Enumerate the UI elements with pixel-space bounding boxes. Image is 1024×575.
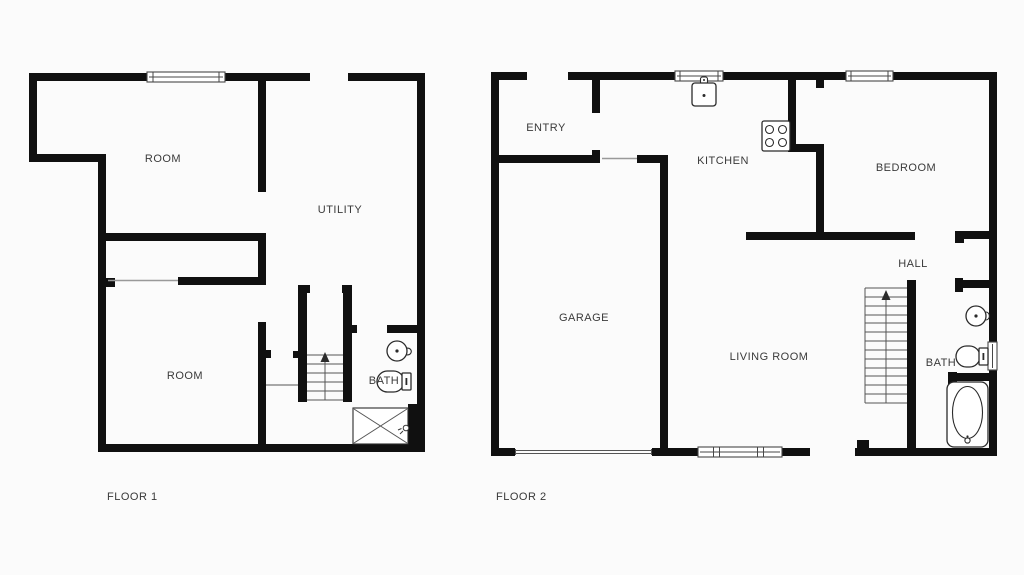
room-label: BATH bbox=[369, 375, 400, 387]
window-symbol bbox=[846, 71, 893, 81]
round-sink-icon bbox=[387, 341, 411, 361]
room-label: ROOM bbox=[167, 370, 203, 382]
door-jamb bbox=[816, 80, 824, 88]
wall-segment bbox=[29, 73, 37, 162]
room-label: GARAGE bbox=[559, 312, 609, 324]
room-label: KITCHEN bbox=[697, 155, 749, 167]
wall-segment bbox=[348, 73, 425, 81]
wall-segment bbox=[29, 73, 147, 81]
wall-segment bbox=[178, 277, 263, 285]
wall-segment bbox=[258, 81, 266, 192]
stove-icon bbox=[762, 121, 790, 151]
window-symbol bbox=[698, 447, 782, 457]
wall-segment bbox=[225, 73, 310, 81]
floor-plan-canvas: ROOM UTILITY ROOM BATH FLOOR 1 bbox=[0, 0, 1024, 575]
wall-segment bbox=[723, 72, 846, 80]
window-symbol bbox=[988, 342, 997, 370]
wall-segment bbox=[816, 144, 824, 240]
garage-door-symbol bbox=[515, 449, 652, 455]
shower-icon bbox=[353, 408, 409, 444]
wall-segment bbox=[258, 322, 266, 448]
door-jamb bbox=[343, 325, 357, 333]
door-jamb bbox=[106, 278, 115, 287]
wall-segment bbox=[491, 448, 515, 456]
wall-segment bbox=[592, 80, 600, 113]
wall-segment bbox=[417, 73, 425, 452]
wall-segment bbox=[568, 72, 675, 80]
wall-segment bbox=[857, 440, 869, 448]
room-label: ROOM bbox=[145, 153, 181, 165]
room-label: BATH bbox=[926, 357, 957, 369]
wall-segment bbox=[989, 72, 997, 456]
stairs-up-icon bbox=[865, 288, 907, 403]
floor2: ENTRY KITCHEN BEDROOM HALL GARAGE LIVING… bbox=[491, 71, 997, 503]
wall-segment bbox=[491, 72, 499, 456]
wall-segment bbox=[907, 280, 916, 448]
window-symbol bbox=[675, 71, 723, 81]
door-jamb bbox=[955, 231, 964, 243]
floor1: ROOM UTILITY ROOM BATH FLOOR 1 bbox=[29, 72, 425, 503]
wall-segment bbox=[408, 404, 417, 444]
wall-segment bbox=[106, 233, 263, 241]
door-jamb bbox=[955, 278, 963, 292]
wall-segment bbox=[387, 325, 417, 333]
room-label: ENTRY bbox=[526, 122, 566, 134]
wall-segment bbox=[782, 448, 810, 456]
room-label: LIVING ROOM bbox=[730, 351, 809, 363]
wall-segment bbox=[499, 155, 600, 163]
room-label: BEDROOM bbox=[876, 162, 936, 174]
floor-title: FLOOR 2 bbox=[496, 491, 547, 503]
door-jamb bbox=[266, 350, 271, 358]
wall-segment bbox=[98, 154, 106, 452]
wall-segment bbox=[29, 154, 106, 162]
bathtub-icon bbox=[947, 382, 988, 447]
round-sink-icon bbox=[966, 306, 989, 326]
wall-segment bbox=[652, 448, 698, 456]
window-symbol bbox=[147, 72, 225, 82]
room-label: HALL bbox=[898, 258, 928, 270]
wall-segment bbox=[343, 285, 352, 402]
wall-segment bbox=[746, 232, 915, 240]
floor-plan-image: ROOM UTILITY ROOM BATH FLOOR 1 bbox=[0, 0, 1024, 575]
room-label: UTILITY bbox=[318, 204, 363, 216]
wall-segment bbox=[660, 155, 668, 448]
wall-segment bbox=[298, 285, 307, 402]
toilet-icon bbox=[956, 346, 988, 367]
door-jamb bbox=[293, 351, 307, 358]
wall-segment bbox=[855, 448, 997, 456]
floor-title: FLOOR 1 bbox=[107, 491, 158, 503]
wall-segment bbox=[893, 72, 997, 80]
